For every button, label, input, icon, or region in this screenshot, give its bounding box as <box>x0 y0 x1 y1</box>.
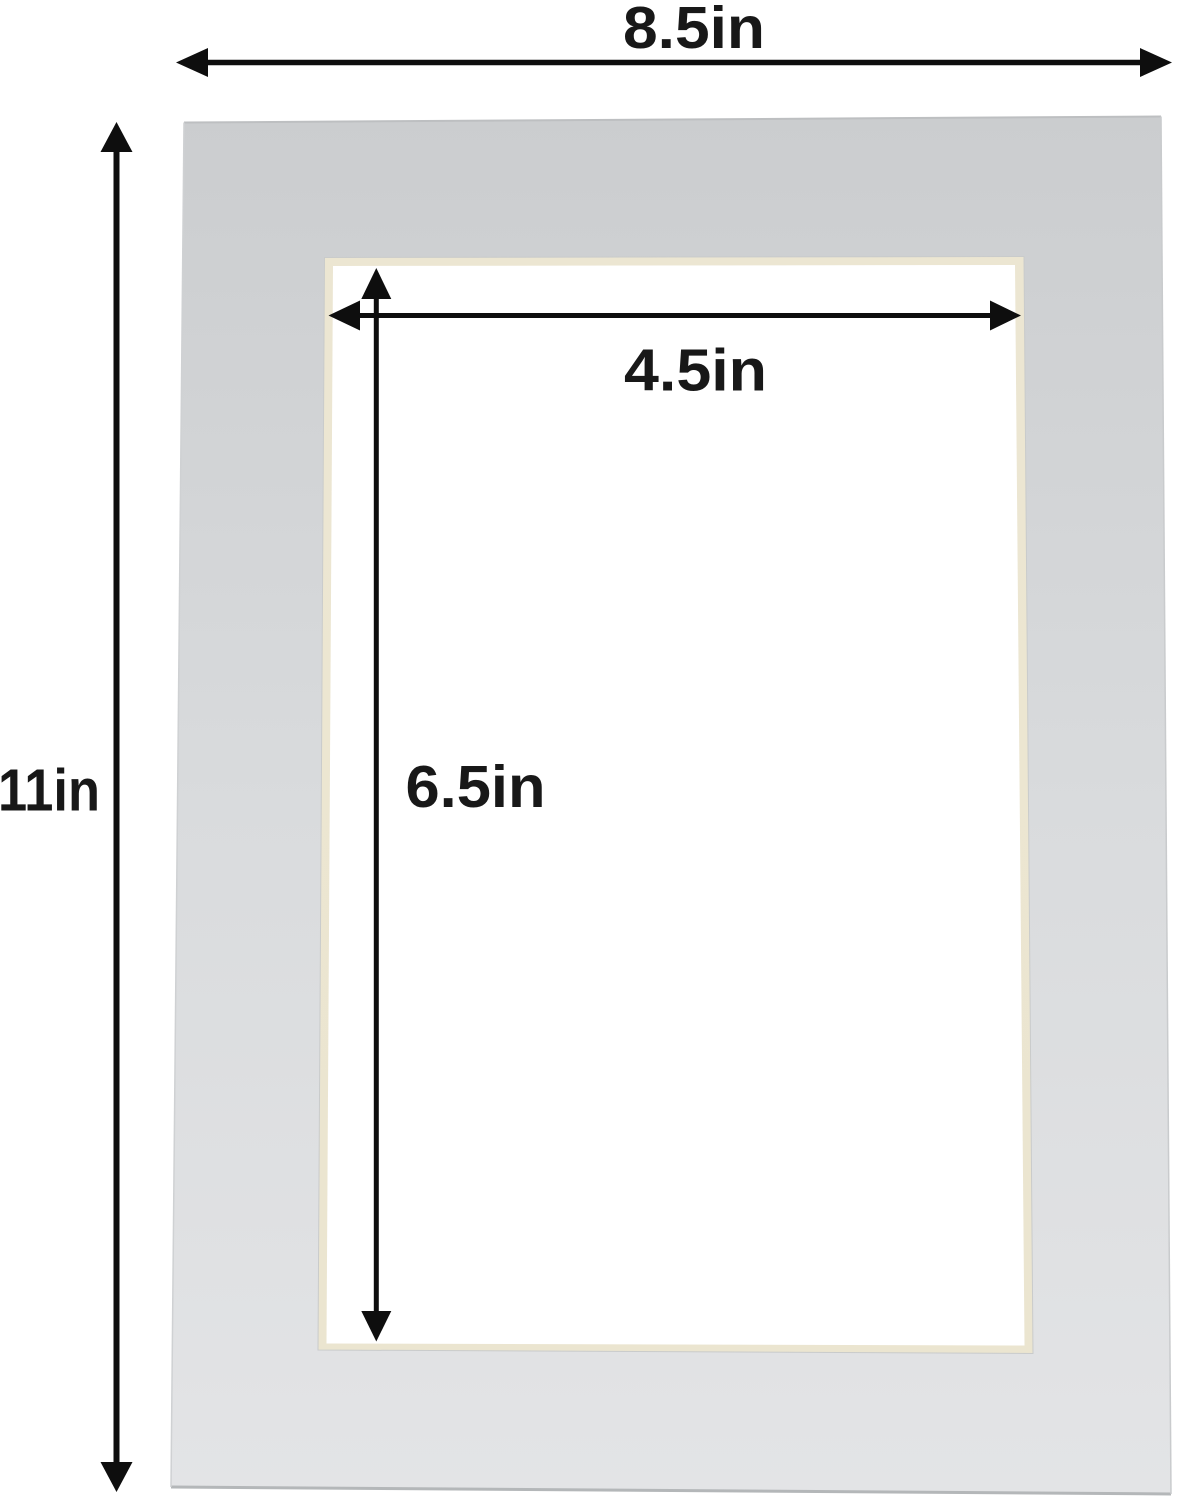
svg-text:6.5in: 6.5in <box>406 753 546 820</box>
svg-text:4.5in: 4.5in <box>624 337 767 404</box>
svg-text:8.5in: 8.5in <box>623 0 765 61</box>
svg-text:11in: 11in <box>0 757 100 824</box>
